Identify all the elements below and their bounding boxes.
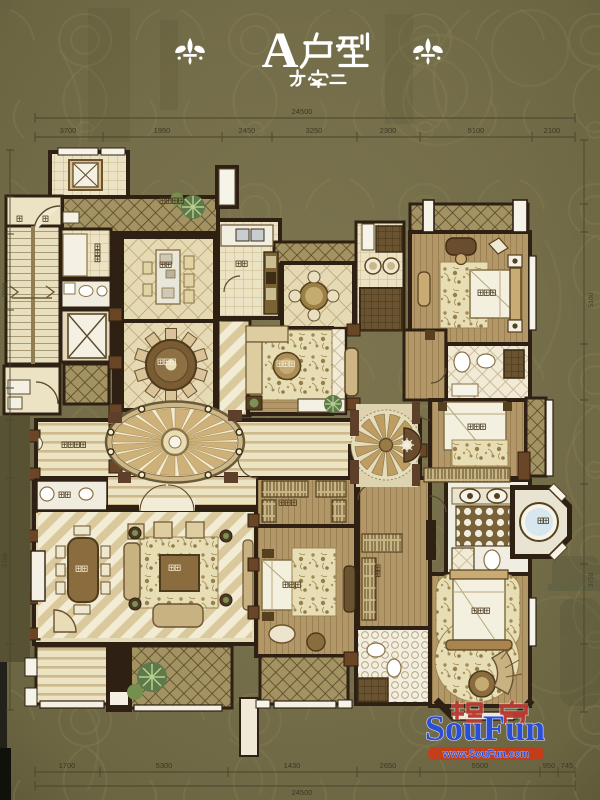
svg-text:5500: 5500 — [472, 761, 489, 770]
svg-text:5100: 5100 — [588, 292, 595, 307]
svg-text:3250: 3250 — [306, 126, 323, 135]
svg-text:A: A — [262, 23, 299, 79]
svg-text:SouFun: SouFun — [425, 708, 545, 748]
svg-text:24500: 24500 — [292, 107, 313, 116]
svg-text:5300: 5300 — [156, 761, 173, 770]
svg-text:2300: 2300 — [380, 126, 397, 135]
svg-text:2650: 2650 — [380, 761, 397, 770]
svg-text:1950: 1950 — [154, 126, 171, 135]
svg-text:3700: 3700 — [60, 126, 77, 135]
svg-text:5100: 5100 — [468, 126, 485, 135]
svg-text:2100: 2100 — [544, 126, 561, 135]
svg-text:2450: 2450 — [239, 126, 256, 135]
svg-text:745: 745 — [561, 761, 574, 770]
svg-text:950: 950 — [543, 761, 556, 770]
svg-text:1700: 1700 — [59, 761, 76, 770]
svg-text:1430: 1430 — [284, 761, 301, 770]
svg-text:24500: 24500 — [292, 788, 313, 797]
svg-text:5100: 5100 — [2, 552, 9, 567]
svg-text:3900: 3900 — [2, 282, 9, 297]
svg-text:3750: 3750 — [588, 572, 595, 587]
svg-text:www.SouFun.com: www.SouFun.com — [442, 749, 529, 760]
